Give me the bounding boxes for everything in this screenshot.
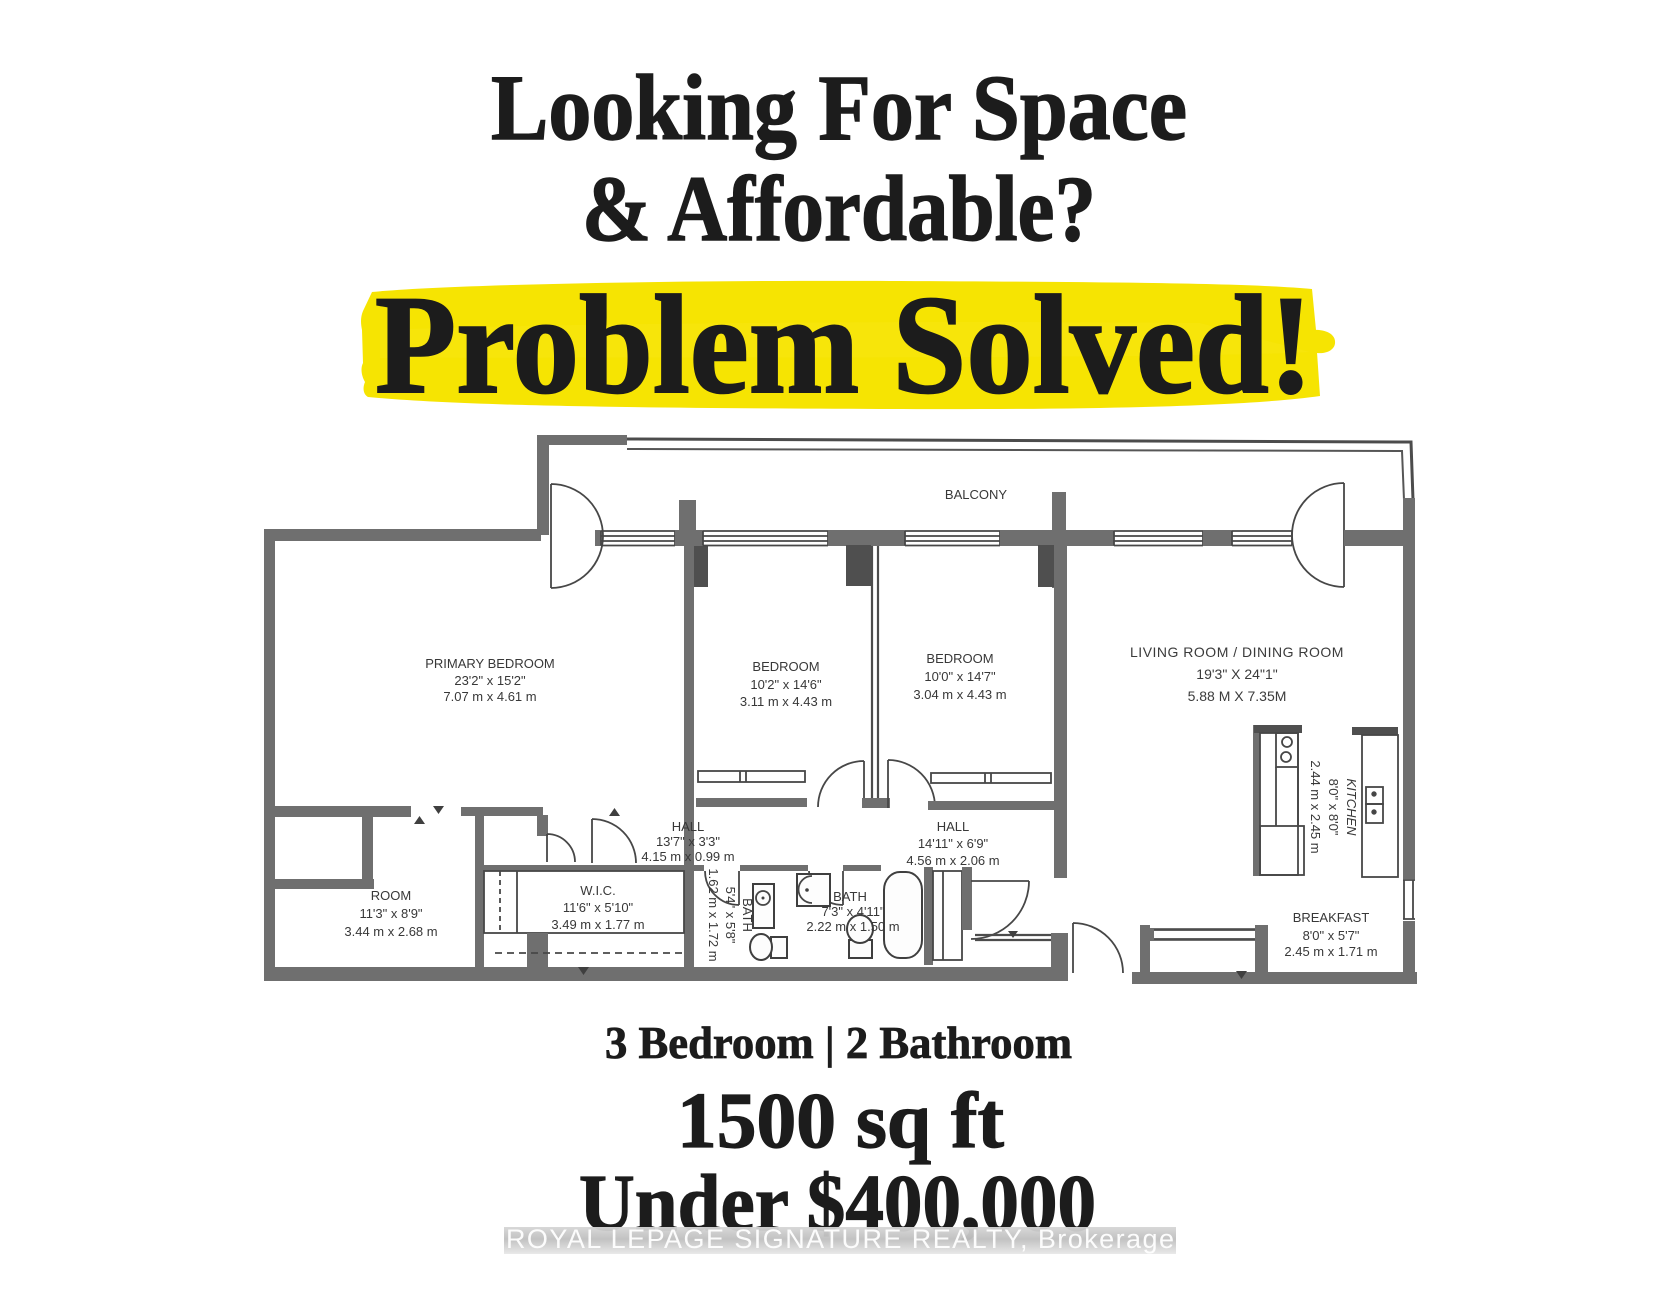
svg-text:7'3" x 4'11": 7'3" x 4'11" xyxy=(821,904,884,919)
svg-text:4.15 m x 0.99 m: 4.15 m x 0.99 m xyxy=(641,849,734,864)
svg-text:2.45 m x 1.71 m: 2.45 m x 1.71 m xyxy=(1284,944,1377,959)
svg-text:BEDROOM: BEDROOM xyxy=(752,659,819,674)
svg-text:2.44 m x 2.45 m: 2.44 m x 2.45 m xyxy=(1308,760,1323,853)
svg-text:BATH: BATH xyxy=(740,898,755,932)
svg-text:LIVING ROOM / DINING ROOM: LIVING ROOM / DINING ROOM xyxy=(1130,644,1344,660)
svg-text:13'7" x 3'3": 13'7" x 3'3" xyxy=(656,834,720,849)
svg-text:11'6" x 5'10": 11'6" x 5'10" xyxy=(563,900,634,915)
svg-text:ROYAL LEPAGE SIGNATURE REALTY,: ROYAL LEPAGE SIGNATURE REALTY, Brokerage xyxy=(506,1224,1174,1254)
svg-text:14'11" x 6'9": 14'11" x 6'9" xyxy=(918,836,989,851)
svg-text:BEDROOM: BEDROOM xyxy=(926,651,993,666)
svg-text:1500 sq ft: 1500 sq ft xyxy=(677,1078,1004,1165)
svg-text:3.44 m x 2.68 m: 3.44 m x 2.68 m xyxy=(344,924,437,939)
svg-text:19'3" X 24"1": 19'3" X 24"1" xyxy=(1196,666,1277,682)
svg-text:3.11 m x 4.43 m: 3.11 m x 4.43 m xyxy=(740,694,832,709)
svg-text:HALL: HALL xyxy=(937,819,970,834)
svg-text:PRIMARY BEDROOM: PRIMARY BEDROOM xyxy=(425,656,555,671)
svg-text:7.07 m x 4.61 m: 7.07 m x 4.61 m xyxy=(443,689,536,704)
svg-text:10'0" x 14'7": 10'0" x 14'7" xyxy=(924,669,996,684)
svg-text:3 Bedroom | 2 Bathroom: 3 Bedroom | 2 Bathroom xyxy=(605,1017,1072,1068)
svg-text:BREAKFAST: BREAKFAST xyxy=(1293,910,1370,925)
svg-text:23'2" x 15'2": 23'2" x 15'2" xyxy=(454,673,526,688)
svg-text:8'0" x 8'0": 8'0" x 8'0" xyxy=(1326,779,1341,836)
svg-text:ROOM: ROOM xyxy=(371,888,411,903)
svg-text:4.56 m x 2.06 m: 4.56 m x 2.06 m xyxy=(906,853,999,868)
svg-text:10'2" x 14'6": 10'2" x 14'6" xyxy=(750,677,822,692)
svg-text:5'4" x 5'8": 5'4" x 5'8" xyxy=(723,887,738,944)
svg-text:8'0" x 5'7": 8'0" x 5'7" xyxy=(1303,928,1360,943)
svg-text:& Affordable?: & Affordable? xyxy=(582,158,1096,261)
svg-text:1.62 m x 1.72 m: 1.62 m x 1.72 m xyxy=(706,868,721,961)
svg-text:3.04 m x 4.43 m: 3.04 m x 4.43 m xyxy=(913,687,1006,702)
svg-text:2.22 m x 1.50 m: 2.22 m x 1.50 m xyxy=(806,919,899,934)
svg-text:KITCHEN: KITCHEN xyxy=(1344,778,1359,836)
svg-text:Looking For Space: Looking For Space xyxy=(491,57,1187,160)
svg-text:BATH: BATH xyxy=(833,889,867,904)
svg-text:W.I.C.: W.I.C. xyxy=(580,883,615,898)
svg-text:Problem Solved!: Problem Solved! xyxy=(375,267,1313,423)
svg-text:HALL: HALL xyxy=(672,819,705,834)
svg-text:11'3" x 8'9": 11'3" x 8'9" xyxy=(359,906,422,921)
svg-text:BALCONY: BALCONY xyxy=(945,487,1007,502)
svg-text:3.49 m x 1.77 m: 3.49 m x 1.77 m xyxy=(551,917,644,932)
svg-text:5.88 M X 7.35M: 5.88 M X 7.35M xyxy=(1188,688,1287,704)
